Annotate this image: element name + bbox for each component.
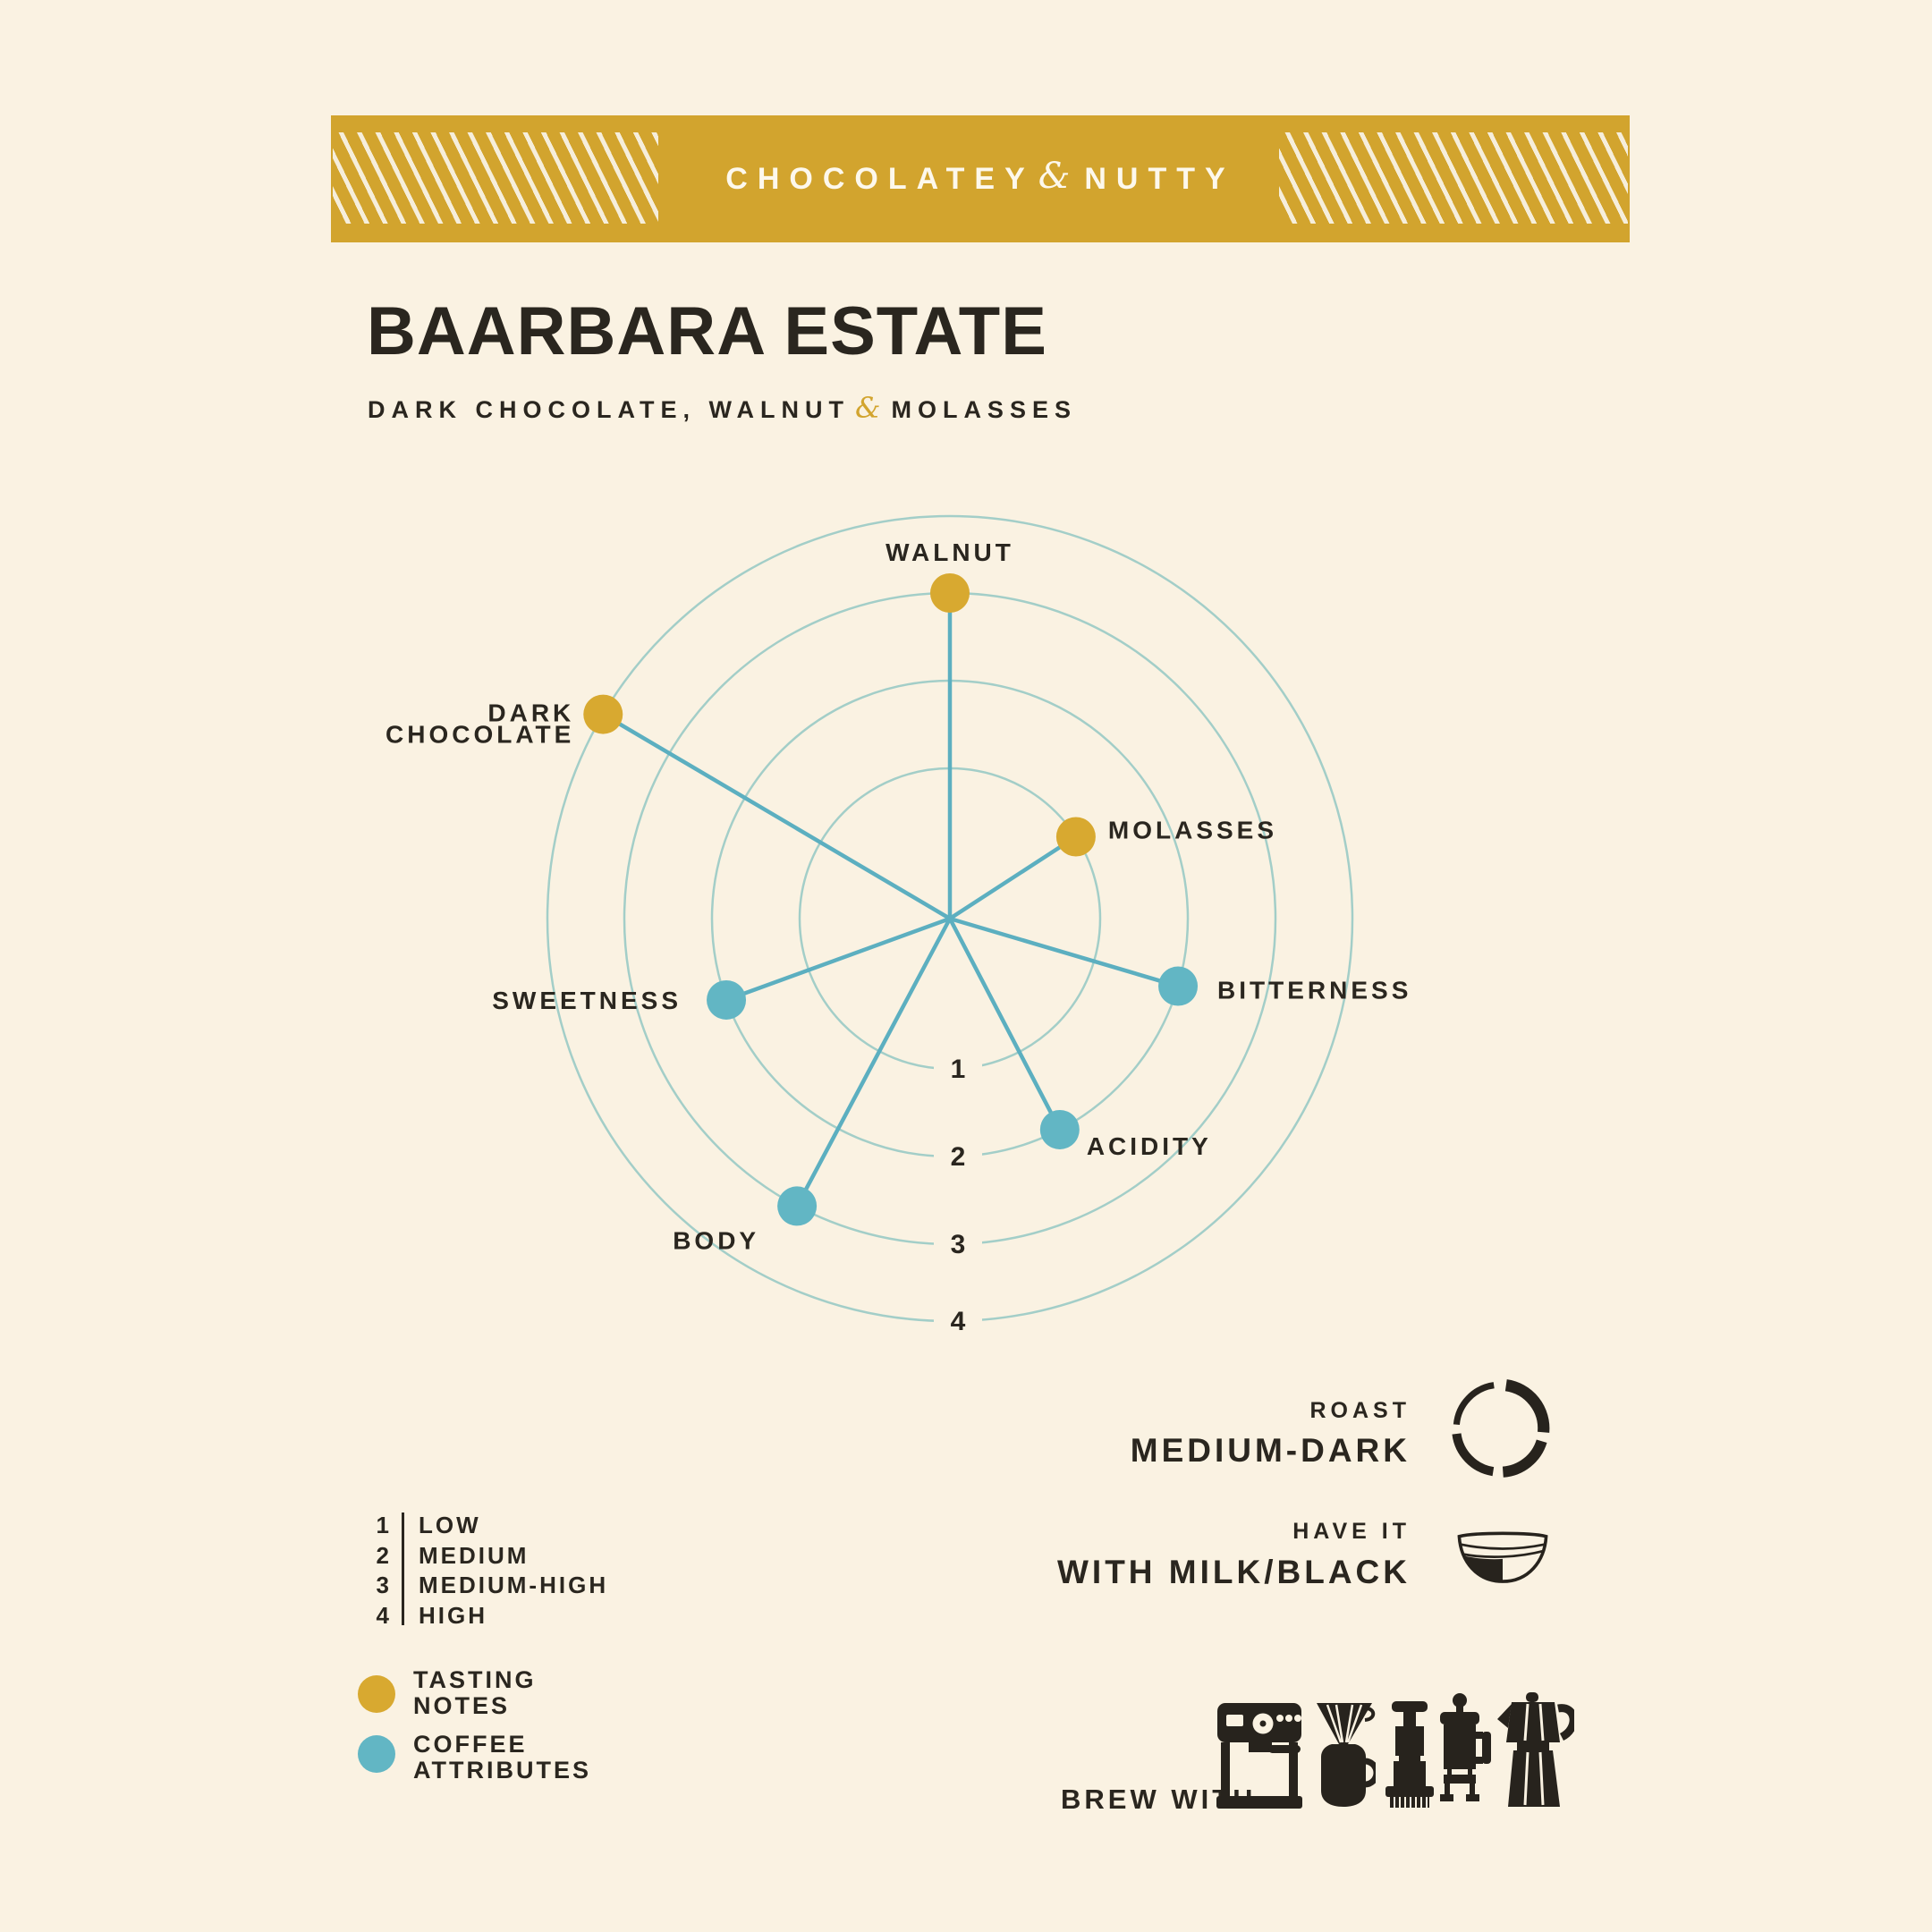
scale-row: 4HIGH: [367, 1601, 608, 1631]
scale-number: 1: [367, 1511, 389, 1541]
scale-label: LOW: [419, 1512, 481, 1538]
radar-axis-label: WALNUT: [885, 538, 1014, 566]
legend-line: ATTRIBUTES: [413, 1758, 591, 1784]
radar-axis-label: ACIDITY: [1087, 1132, 1212, 1160]
radar-ring-number: 4: [951, 1307, 966, 1336]
scale-number: 2: [367, 1541, 389, 1572]
radar-dot: [777, 1186, 817, 1225]
tasting-notes-dot: [358, 1675, 395, 1713]
scale-number: 4: [367, 1601, 389, 1631]
radar-spoke: [950, 837, 1076, 919]
pour-over-icon: [1313, 1701, 1376, 1809]
radar-dot: [1158, 967, 1198, 1006]
scale-label: HIGH: [419, 1602, 487, 1629]
radar-spoke: [603, 715, 950, 919]
radar-spoke: [726, 919, 950, 1000]
scale-label: MEDIUM: [419, 1542, 529, 1569]
radar-dot: [930, 573, 970, 613]
radar-spoke: [950, 919, 1060, 1130]
tasting-notes-legend-label: TASTING NOTES: [413, 1667, 537, 1719]
coffee-attributes-legend-label: COFFEE ATTRIBUTES: [413, 1732, 591, 1784]
scale-label: MEDIUM-HIGH: [419, 1572, 608, 1598]
radar-spoke: [797, 919, 950, 1206]
radar-axis-label: BODY: [673, 1226, 759, 1254]
radar-spoke: [950, 919, 1178, 987]
radar-ring-number: 2: [951, 1142, 966, 1172]
legend-line: COFFEE: [413, 1732, 591, 1758]
scale-legend: 1LOW 2MEDIUM 3MEDIUM-HIGH 4HIGH: [367, 1511, 608, 1631]
roast-value: MEDIUM-DARK: [963, 1432, 1411, 1470]
radar-ring-number: 3: [951, 1230, 966, 1259]
french-press-icon: [1433, 1692, 1492, 1809]
have-it-value: WITH MILK/BLACK: [963, 1554, 1411, 1591]
radar-dot: [1056, 818, 1096, 857]
radar-chart: 1234WALNUTMOLASSESBITTERNESSACIDITYBODYS…: [0, 0, 1932, 1932]
scale-row: 2MEDIUM: [367, 1541, 608, 1572]
radar-ring-number: 1: [951, 1055, 966, 1084]
radar-axis-label: SWEETNESS: [492, 987, 682, 1014]
scale-number: 3: [367, 1571, 389, 1601]
legend-line: NOTES: [413, 1693, 537, 1719]
roast-level-icon: [1445, 1374, 1555, 1483]
radar-dot: [1040, 1110, 1080, 1149]
radar-axis-label: MOLASSES: [1108, 817, 1277, 844]
radar-axis-label: BITTERNESS: [1217, 977, 1411, 1004]
scale-row: 3MEDIUM-HIGH: [367, 1571, 608, 1601]
legend-line: TASTING: [413, 1667, 537, 1693]
radar-dot: [707, 980, 746, 1020]
radar-dot: [583, 695, 623, 734]
coffee-attributes-dot: [358, 1735, 395, 1773]
coffee-info-card: CHOCOLATEY&NUTTY BAARBARA ESTATE DARK CH…: [0, 0, 1932, 1932]
aeropress-icon: [1385, 1701, 1435, 1809]
radar-axis-label: DARKCHOCOLATE: [386, 699, 574, 749]
have-it-label: HAVE IT: [1053, 1519, 1411, 1545]
coffee-bowl-icon: [1451, 1526, 1555, 1590]
roast-label: ROAST: [1053, 1398, 1411, 1424]
scale-row: 1LOW: [367, 1511, 608, 1541]
moka-pot-icon: [1492, 1692, 1574, 1809]
espresso-machine-icon: [1216, 1701, 1302, 1809]
